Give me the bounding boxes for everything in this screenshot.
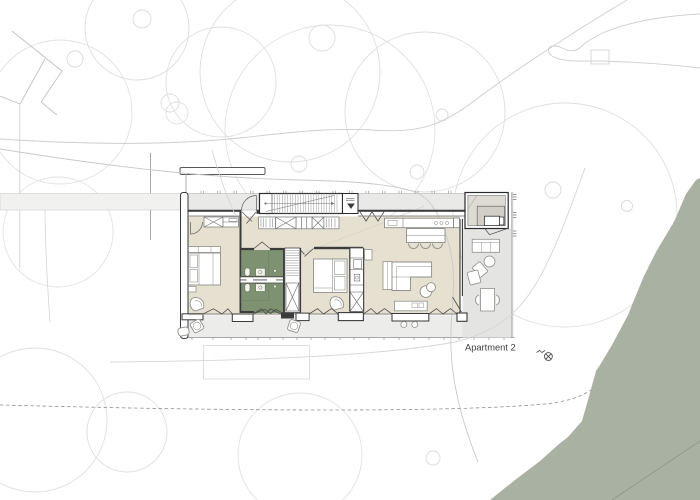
svg-text:Apartment 2: Apartment 2 xyxy=(465,343,516,353)
